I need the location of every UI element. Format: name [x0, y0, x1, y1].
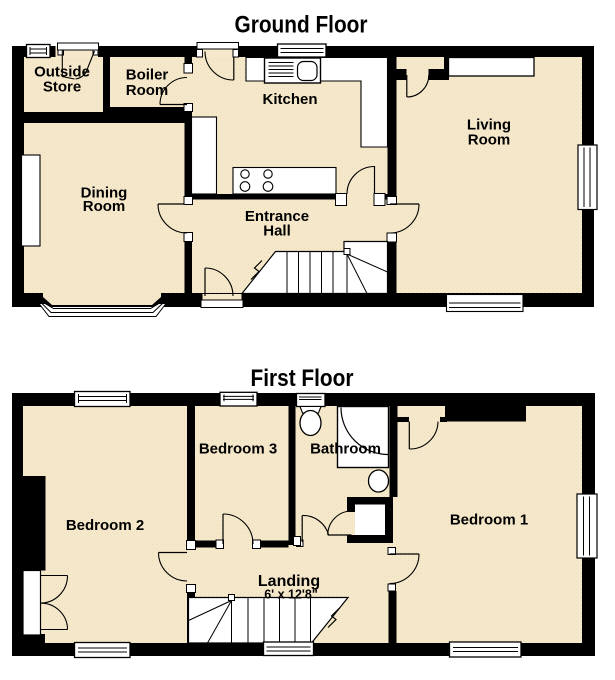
- svg-text:Room: Room: [83, 198, 126, 215]
- svg-text:Bathroom: Bathroom: [310, 441, 381, 458]
- svg-text:Room: Room: [468, 132, 511, 149]
- svg-text:Store: Store: [43, 79, 81, 96]
- svg-text:Room: Room: [126, 82, 169, 99]
- svg-text:Bedroom 2: Bedroom 2: [66, 517, 144, 534]
- svg-text:Boiler: Boiler: [126, 67, 169, 84]
- svg-text:Bedroom 3: Bedroom 3: [199, 441, 277, 458]
- svg-text:Bedroom 1: Bedroom 1: [450, 512, 528, 529]
- svg-text:Ground Floor: Ground Floor: [235, 10, 368, 38]
- svg-text:6' x 12'8": 6' x 12'8": [264, 588, 318, 602]
- svg-text:Hall: Hall: [263, 223, 291, 240]
- svg-text:Kitchen: Kitchen: [262, 91, 317, 108]
- svg-text:First Floor: First Floor: [251, 363, 354, 391]
